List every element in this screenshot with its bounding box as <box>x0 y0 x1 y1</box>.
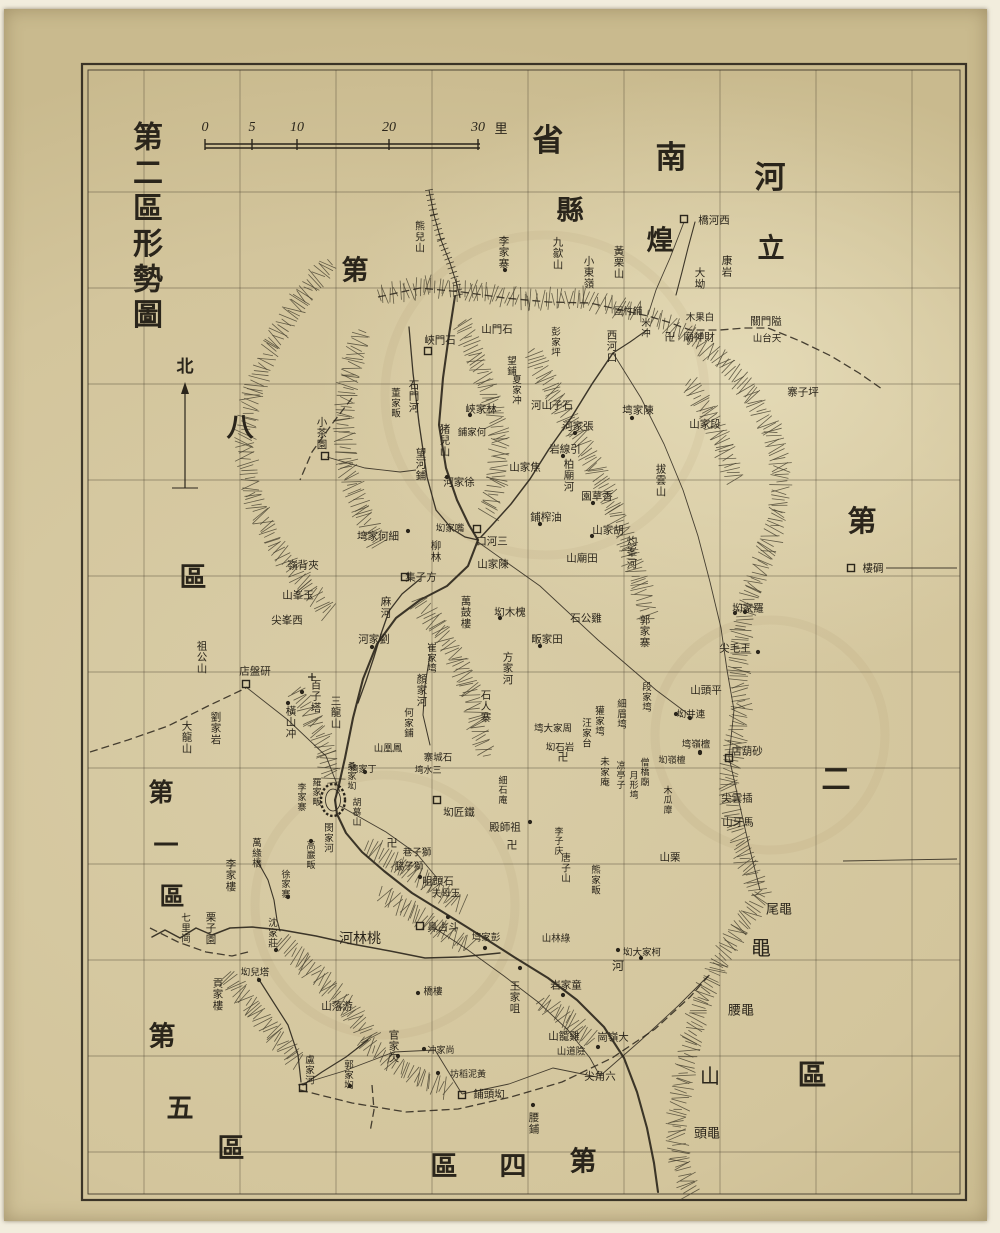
place-label: 兒 <box>415 232 425 244</box>
place-label: 山道險 <box>557 1045 586 1057</box>
place-label: 殿師祖 <box>489 821 521 834</box>
place-label: 腰 <box>529 1112 540 1124</box>
north-label: 北 <box>177 357 194 376</box>
village-dot-symbol <box>286 701 290 705</box>
place-label: 沈 <box>268 917 278 929</box>
place-label: 欠 <box>389 1051 400 1064</box>
place-label: 方 <box>503 650 514 663</box>
region-char-label: 縣 <box>557 195 584 225</box>
place-label: 河家徐 <box>443 476 475 489</box>
place-label: 月 <box>629 770 638 780</box>
region-char-label: 五 <box>167 1093 194 1123</box>
place-label: 石 <box>409 380 420 391</box>
place-label: 脇子獅 <box>395 860 424 872</box>
village-dot-symbol <box>616 948 620 952</box>
place-label: 家 <box>642 691 652 703</box>
place-label: 塆 <box>642 702 652 714</box>
place-label: 河 <box>305 1075 315 1087</box>
place-label: 門 <box>409 391 420 403</box>
place-label: 山 <box>614 268 625 280</box>
place-label: 岩 <box>211 733 222 746</box>
place-label: 河 <box>417 696 428 708</box>
town-square-symbol <box>322 453 329 460</box>
place-label: 夏 <box>512 375 522 386</box>
place-label: 木 <box>663 784 672 795</box>
place-label: 山廟田 <box>566 552 598 565</box>
place-label: 關門隘 <box>750 315 782 328</box>
place-label: 木果白 <box>686 311 715 323</box>
place-label: 汪 <box>582 717 592 729</box>
place-label: 家 <box>391 397 401 409</box>
place-label: 㘭 <box>347 781 356 791</box>
place-label: 人 <box>481 701 492 713</box>
place-label: 咀 <box>510 1003 521 1015</box>
region-char-label: 煌 <box>647 225 674 255</box>
place-label: 山家陳 <box>477 558 509 571</box>
place-label: 小 <box>584 255 595 267</box>
place-label: 七 <box>181 913 191 924</box>
place-label: 拔 <box>656 462 667 475</box>
place-label: 塔 <box>311 701 322 714</box>
place-label: 峽門石 <box>424 334 456 347</box>
place-label: 口 <box>607 353 618 364</box>
place-label: 家 <box>297 791 306 802</box>
map-title-char: 第 <box>133 121 163 155</box>
place-label: 郭 <box>344 1059 354 1071</box>
place-label: 家 <box>591 874 601 886</box>
place-label: 栗 <box>206 911 217 923</box>
place-label: 石 <box>498 785 507 795</box>
place-label: 亭 <box>616 769 625 780</box>
place-label: 家 <box>324 832 334 844</box>
place-label: 畈 <box>391 408 401 420</box>
place-label: 園草香 <box>581 491 613 503</box>
place-label: 㘭匠鐵 <box>443 806 475 819</box>
place-label: 塆家何細 <box>357 530 399 543</box>
place-label: 塆家丁 <box>349 763 376 774</box>
place-label: 夫母王 <box>432 887 461 899</box>
village-dot-symbol <box>436 1071 440 1075</box>
region-char-label: 省 <box>533 123 564 158</box>
place-label: 冲 <box>286 727 297 740</box>
place-label: 凉 <box>616 759 625 770</box>
place-label: 家 <box>499 246 510 259</box>
village-dot-symbol <box>531 1103 535 1107</box>
place-label: 冲 <box>641 327 651 339</box>
place-label: 橋河西 <box>698 214 730 227</box>
place-label: 橫 <box>286 704 297 717</box>
place-label: 橋樓 <box>423 985 443 997</box>
place-label: 塆 <box>617 719 627 731</box>
place-label: 鼓 <box>461 606 472 619</box>
place-label: 嶺 <box>584 278 595 290</box>
place-label: 台 <box>582 738 592 750</box>
place-label: 山 <box>415 242 425 254</box>
place-label: 巷子獅 <box>403 846 432 858</box>
place-label: 柳 <box>431 539 442 552</box>
place-label: 家 <box>404 717 414 729</box>
scale-tick-label: 30 <box>470 120 485 135</box>
region-char-label: 二 <box>821 764 850 796</box>
place-label: 山林綠 <box>542 932 571 944</box>
place-label: 冲 <box>512 395 522 407</box>
place-label: 畈家田 <box>531 633 563 646</box>
region-char-label: 第 <box>148 778 173 807</box>
place-label: 細 <box>498 774 507 785</box>
place-label: 劉 <box>211 710 222 723</box>
place-label: 李 <box>554 825 563 836</box>
place-label: 三 <box>331 696 342 707</box>
place-label: 寨 <box>297 801 306 812</box>
place-label: 祖 <box>197 639 208 652</box>
place-label: 鋪榨油 <box>530 511 562 524</box>
scale-tick-label: 10 <box>290 120 304 135</box>
place-label: 峽家林 <box>465 403 497 416</box>
place-label: 望 <box>507 355 517 367</box>
north-arrow: 北 <box>172 357 198 488</box>
place-label: 畈 <box>312 796 321 807</box>
place-label: 園 <box>206 934 217 946</box>
place-label: 廟神財 <box>683 331 715 344</box>
place-label: 鋪 <box>416 469 427 482</box>
place-label: 子 <box>311 691 322 703</box>
place-label: 子 <box>616 780 625 790</box>
place-label: 橋 <box>252 858 262 870</box>
map-title-char: 二 <box>133 157 163 190</box>
town-square-symbol <box>459 1092 466 1099</box>
place-label: 山 <box>561 874 571 885</box>
place-label: 石 <box>481 690 492 701</box>
place-label: 山門石 <box>481 324 513 336</box>
place-label: 山 <box>197 663 208 675</box>
place-label: 里 <box>181 923 191 934</box>
region-char-label: 區 <box>180 562 207 592</box>
place-label: 兒 <box>440 435 451 447</box>
region-char-label: 區 <box>431 1151 458 1181</box>
village-dot-symbol <box>528 820 532 824</box>
place-label: 家 <box>281 878 290 889</box>
place-label: 尖雲插 <box>721 792 753 805</box>
place-label: 㘭 <box>344 1081 354 1092</box>
place-label: 熊 <box>591 864 601 876</box>
region-char-label: 四 <box>500 1151 527 1181</box>
village-dot-symbol <box>756 650 760 654</box>
place-label: 坳 <box>695 277 706 290</box>
region-char-label: 八 <box>227 412 255 442</box>
place-label: 萬 <box>461 594 472 607</box>
place-label: 塆家陳 <box>622 404 654 417</box>
region-char-label: 南 <box>656 140 687 175</box>
place-label: 家 <box>600 766 610 778</box>
village-dot-symbol <box>406 529 410 533</box>
place-label: 緣 <box>252 847 262 859</box>
place-label: 橋 <box>640 766 649 777</box>
temple-swastika-symbol: 卍 <box>665 331 676 344</box>
temple-swastika-symbol: 卍 <box>507 839 518 852</box>
place-label: 㢓 <box>663 804 672 815</box>
place-label: 家 <box>427 652 437 664</box>
town-square-symbol <box>243 681 250 688</box>
region-char-label: 一 <box>153 833 178 860</box>
place-labels: 熊兒山李家寨九歙山小東嶺黃栗山橋河西康岩大坳木果白廟神財關門隘山台天寨子坪山家段… <box>181 214 883 1141</box>
place-label: 山 <box>656 486 667 498</box>
village-dot-symbol <box>561 993 565 997</box>
village-dot-symbol <box>422 1047 426 1051</box>
place-label: 塆水三 <box>414 764 441 775</box>
place-label: 灼 <box>627 534 638 547</box>
region-char-label: 第 <box>149 1020 176 1051</box>
place-label: 河 <box>627 558 638 570</box>
place-label: 山 <box>331 718 342 730</box>
place-label: 家 <box>503 662 514 675</box>
place-label: 山 <box>286 717 297 729</box>
town-square-symbol <box>681 216 688 223</box>
place-label: 細 <box>617 698 627 710</box>
place-label: 尾黽 <box>766 902 792 917</box>
place-label: 鼻占斗 <box>427 921 459 934</box>
place-label: 康 <box>722 254 733 267</box>
place-label: 崗嶺大 <box>597 1031 629 1044</box>
place-label: 龍 <box>182 731 193 744</box>
village-dot-symbol <box>446 915 450 919</box>
place-label: 山 <box>700 1065 720 1088</box>
place-label: 樓碉 <box>863 562 884 575</box>
place-label: 郭 <box>640 613 651 626</box>
region-char-label: 第 <box>847 504 876 538</box>
place-label: 官 <box>389 1028 400 1041</box>
place-label: 羅 <box>312 777 321 787</box>
place-label: 山峯玉 <box>282 590 314 602</box>
place-label: 河 <box>612 959 624 973</box>
place-label: 徐 <box>281 868 290 879</box>
village-dot-symbol <box>416 991 420 995</box>
place-label: 萬 <box>252 837 262 849</box>
place-label: 㘭大家柯 <box>623 946 662 958</box>
place-label: 李 <box>499 234 510 247</box>
place-label: 子 <box>554 836 563 846</box>
place-label: 店葫砂 <box>731 745 763 758</box>
place-label: 李 <box>226 857 237 870</box>
place-label: 家 <box>226 869 237 882</box>
place-label: 樓 <box>226 880 237 893</box>
region-char-label: 河 <box>755 160 786 195</box>
place-label: 山 <box>352 817 361 827</box>
place-label: 山台天 <box>753 332 782 344</box>
place-label: 冲家尚 <box>427 1044 454 1055</box>
place-label: 山家焦 <box>509 461 541 474</box>
place-label: 猪 <box>440 423 451 435</box>
place-label: 龍 <box>331 706 342 719</box>
place-label: 廟 <box>640 776 649 787</box>
place-label: 獾 <box>595 705 605 717</box>
place-label: 莊 <box>268 939 278 950</box>
place-label: 家 <box>582 727 592 739</box>
place-label: 西 <box>607 330 618 341</box>
map-title-char: 圖 <box>133 299 163 332</box>
town-square-symbol <box>425 348 432 355</box>
place-label: 畈 <box>591 885 601 897</box>
place-label: 九 <box>553 236 564 248</box>
place-label: 家 <box>551 336 561 348</box>
place-label: 黃 <box>614 244 625 257</box>
place-label: 柏 <box>564 457 575 470</box>
place-label: 百 <box>311 679 322 691</box>
place-label: 董 <box>391 387 401 399</box>
place-label: 何 <box>404 707 414 719</box>
map-canvas: 卍卍卍卍熊兒山李家寨九歙山小東嶺黃栗山橋河西康岩大坳木果白廟神財關門隘山台天寨子… <box>0 0 1000 1233</box>
place-label: 山頭平 <box>690 685 722 697</box>
region-char-label: 第 <box>570 1145 597 1176</box>
place-label: 塆大家周 <box>534 722 572 734</box>
village-dot-symbol <box>257 978 261 982</box>
place-label: 樓 <box>213 999 224 1012</box>
place-label: 家 <box>389 1040 400 1053</box>
place-label: 庵 <box>498 794 507 805</box>
place-label: 鋪家何 <box>458 426 487 438</box>
place-label: 廟 <box>564 469 575 482</box>
place-label: 㘭嶺檀 <box>658 754 685 765</box>
map-title-char: 區 <box>133 193 163 226</box>
place-label: 巖 <box>306 849 315 860</box>
place-label: 家 <box>312 786 321 797</box>
place-label: 段 <box>642 681 652 693</box>
place-label: 東 <box>584 266 595 279</box>
place-label: 山栗 <box>660 852 681 864</box>
place-label: 家 <box>344 1069 354 1081</box>
place-label: 小 <box>317 416 328 428</box>
place-label: 山 <box>553 259 564 271</box>
place-label: 閔 <box>324 823 334 834</box>
place-label: 尖毛王 <box>719 642 751 655</box>
place-label: 寨子坪 <box>787 386 819 399</box>
place-label: 寨 <box>281 888 290 899</box>
place-label: 河 <box>564 481 575 493</box>
place-label: 家 <box>305 1064 315 1076</box>
place-label: 坊稻泥黃 <box>450 1068 486 1079</box>
place-label: 山落游 <box>321 1000 353 1013</box>
place-label: 家 <box>417 684 428 697</box>
place-label: 㘭家嘴 <box>436 522 465 534</box>
village-dot-symbol <box>596 1045 600 1049</box>
place-label: 河林桃 <box>339 931 381 947</box>
place-label: 河 <box>381 607 392 619</box>
place-label: 貢 <box>213 977 224 989</box>
place-label: 鋪 <box>529 1122 540 1135</box>
place-label: 家 <box>213 988 224 1001</box>
place-label: 子 <box>206 923 217 935</box>
scale-bar: 05102030里 <box>202 120 508 150</box>
region-char-label: 區 <box>218 1133 245 1163</box>
place-label: 岩 <box>722 265 733 278</box>
place-label: 眉 <box>617 709 627 720</box>
place-label: 歙 <box>553 247 564 260</box>
place-label: 園 <box>317 439 328 451</box>
place-label: 胡 <box>352 796 361 807</box>
place-label: 店盤研 <box>239 665 271 678</box>
walled-town-symbol <box>321 784 345 816</box>
place-label: 尖角六 <box>584 1070 616 1083</box>
place-label: 麻 <box>381 595 392 608</box>
place-label: 鋪頭㘭 <box>473 1088 505 1101</box>
place-label: 庵 <box>600 777 610 789</box>
temple-swastika-symbol: 卍 <box>387 837 398 850</box>
place-label: 山籠雞 <box>548 1030 580 1043</box>
town-square-symbol <box>434 797 441 804</box>
place-label: 尖峯西 <box>271 614 303 627</box>
region-char-label: 區 <box>797 1060 826 1092</box>
place-label: 公 <box>197 652 208 664</box>
place-label: 大 <box>695 266 706 279</box>
place-label: 河 <box>416 459 427 471</box>
place-label: 李 <box>297 781 306 792</box>
scale-tick-label: 5 <box>249 120 256 135</box>
place-label: 家 <box>211 722 222 735</box>
place-label: 口河三 <box>476 536 508 548</box>
place-label: 家 <box>510 991 521 1004</box>
scale-tick-label: 0 <box>202 120 209 135</box>
place-label: 栗 <box>614 257 625 269</box>
place-label: 僧 <box>640 756 649 767</box>
place-label: 塆家彭 <box>472 931 501 943</box>
place-label: 家 <box>640 625 651 638</box>
place-label: 塆 <box>595 726 605 738</box>
place-label: 崗 <box>181 934 191 945</box>
place-label: 形 <box>629 779 638 790</box>
place-label: 峯 <box>627 547 638 559</box>
place-label: 集子方 <box>405 571 437 584</box>
place-label: 山家胡 <box>592 524 624 537</box>
scale-tick-label: 20 <box>382 120 396 135</box>
place-label: 家 <box>595 715 605 727</box>
region-char-label: 區 <box>159 884 184 911</box>
place-label: 畈 <box>306 859 315 870</box>
place-label: 望 <box>416 446 427 459</box>
place-label: 㘭兒塔 <box>241 966 270 978</box>
place-label: 塆嶺檀 <box>682 738 711 750</box>
town-square-symbol <box>474 526 481 533</box>
place-label: 樓 <box>461 617 472 630</box>
place-label: 河家張 <box>562 420 594 433</box>
place-label: 岩家童 <box>550 979 582 992</box>
place-label: 家 <box>268 927 278 939</box>
place-label: 高 <box>306 839 315 850</box>
place-label: 石公雞 <box>570 612 602 625</box>
place-label: 王 <box>510 981 521 992</box>
place-label: 腰黽 <box>728 1003 754 1018</box>
place-label: 茶 <box>317 427 328 440</box>
scale-unit-label: 里 <box>494 121 507 136</box>
place-label: 河 <box>607 341 618 353</box>
place-label: 未 <box>600 756 610 768</box>
map-title-char: 形 <box>133 228 163 261</box>
place-label: 頭黽 <box>694 1126 720 1141</box>
place-label: 米 <box>641 317 651 329</box>
place-label: 坪 <box>551 347 561 359</box>
place-label: 林 <box>431 550 442 563</box>
town-square-symbol <box>848 565 855 572</box>
place-label: 㘭石岩 <box>546 741 575 753</box>
settlement-symbols: 卍卍卍卍 <box>243 216 855 1108</box>
region-char-label: 立 <box>758 232 785 263</box>
village-dot-symbol <box>300 690 304 694</box>
place-label: 慕 <box>352 806 361 817</box>
place-label: 寨 <box>499 257 510 270</box>
place-label: 寨 <box>640 636 651 649</box>
place-label: 岩線引 <box>549 443 581 456</box>
place-label: 河家劉 <box>358 633 390 646</box>
place-label: 固竹鋪 <box>614 305 643 317</box>
map-title: 第二區形勢圖 <box>133 121 163 333</box>
